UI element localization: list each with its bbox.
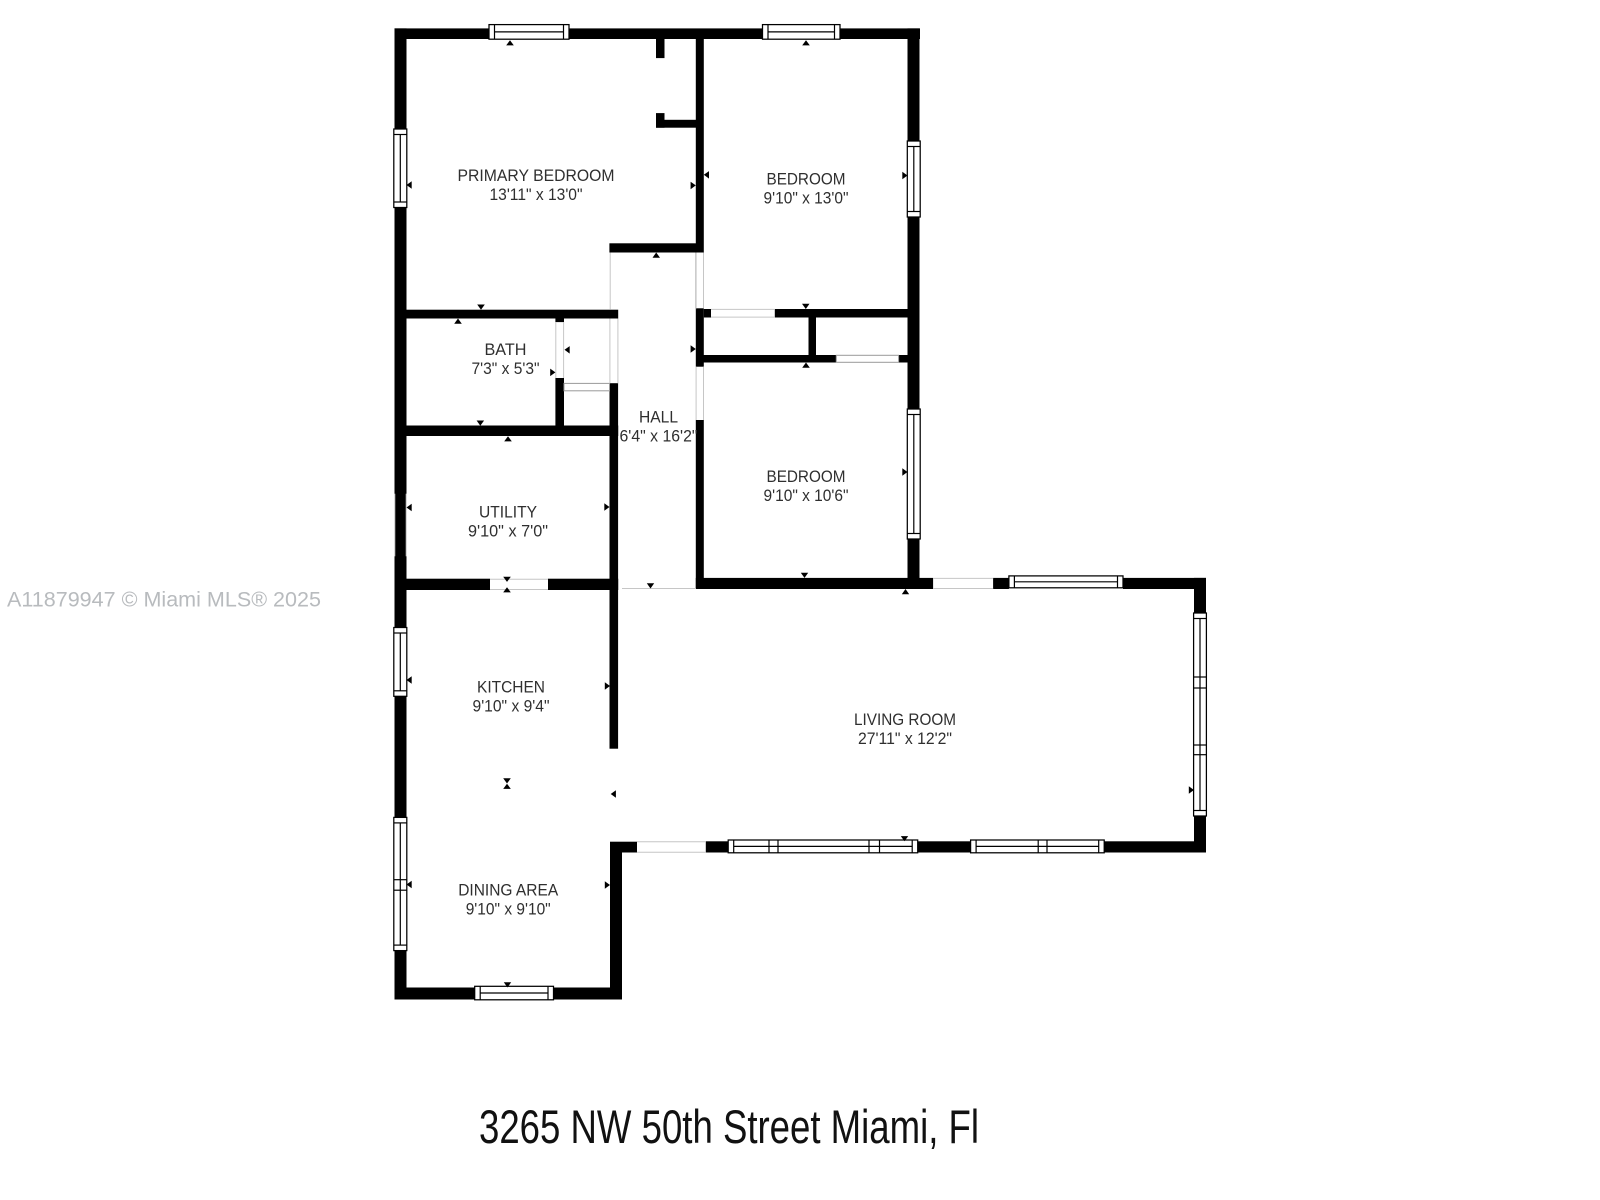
svg-text:BATH: BATH — [485, 340, 527, 359]
svg-text:6'4" x 16'2": 6'4" x 16'2" — [620, 426, 698, 445]
svg-text:9'10" x 13'0": 9'10" x 13'0" — [764, 189, 849, 208]
svg-text:13'11" x 13'0": 13'11" x 13'0" — [490, 185, 583, 204]
svg-text:KITCHEN: KITCHEN — [477, 677, 545, 696]
svg-text:27'11" x 12'2": 27'11" x 12'2" — [858, 729, 952, 748]
svg-text:7'3" x 5'3": 7'3" x 5'3" — [472, 359, 540, 378]
svg-text:9'10" x 9'4": 9'10" x 9'4" — [473, 696, 550, 715]
svg-text:9'10" x 7'0": 9'10" x 7'0" — [468, 521, 548, 540]
svg-text:UTILITY: UTILITY — [479, 502, 537, 521]
svg-text:LIVING ROOM: LIVING ROOM — [854, 710, 956, 729]
svg-text:BEDROOM: BEDROOM — [767, 467, 846, 486]
svg-text:9'10" x 9'10": 9'10" x 9'10" — [466, 899, 551, 918]
svg-text:A11879947 © Miami MLS® 2025: A11879947 © Miami MLS® 2025 — [7, 588, 321, 612]
svg-text:PRIMARY BEDROOM: PRIMARY BEDROOM — [458, 166, 615, 185]
svg-text:3265 NW 50th Street Miami, Fl: 3265 NW 50th Street Miami, Fl — [479, 1100, 979, 1153]
svg-text:DINING AREA: DINING AREA — [458, 880, 559, 899]
svg-text:HALL: HALL — [639, 407, 678, 426]
svg-text:9'10" x 10'6": 9'10" x 10'6" — [764, 486, 849, 505]
svg-text:BEDROOM: BEDROOM — [767, 170, 846, 189]
